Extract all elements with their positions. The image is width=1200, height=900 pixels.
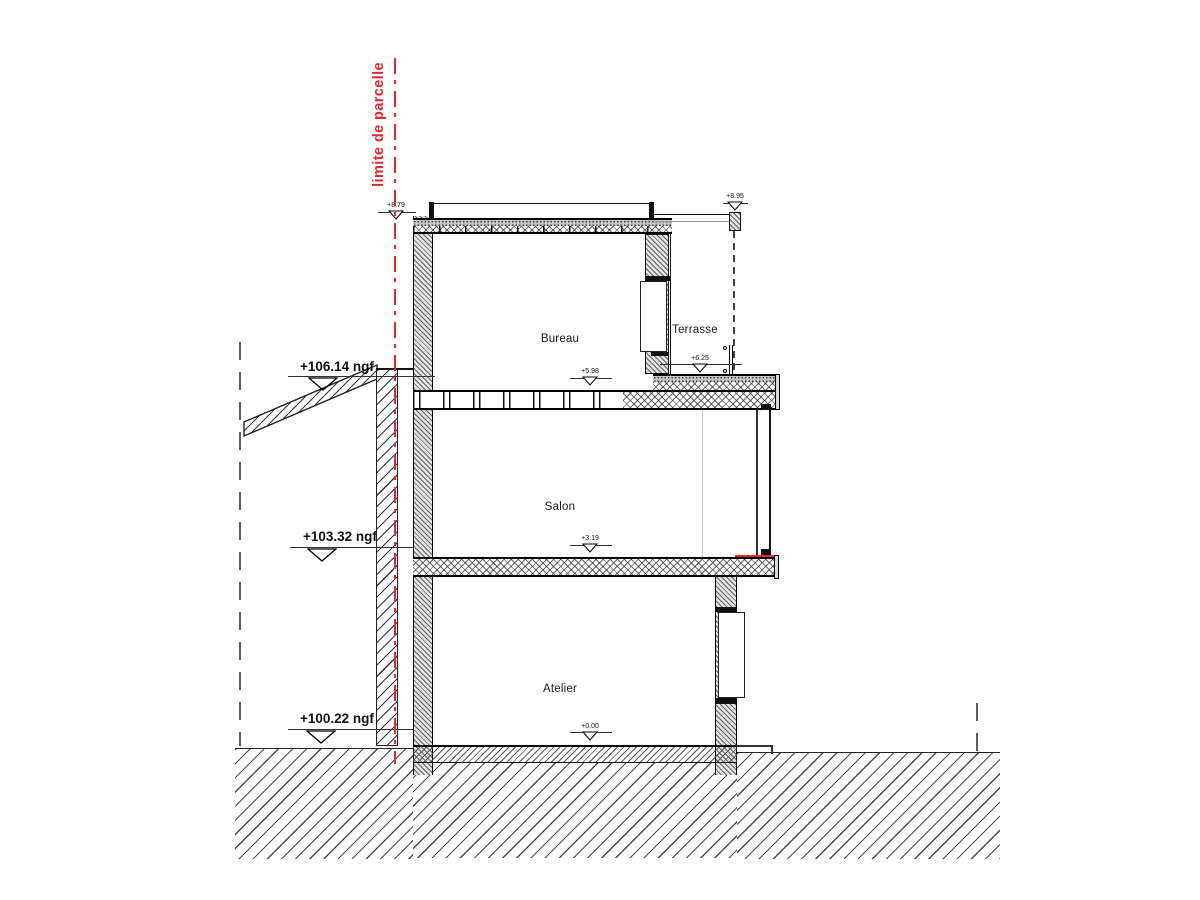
- terrasse-door-sill: [651, 352, 669, 356]
- room-label-salon: Salon: [505, 501, 615, 513]
- room-label-atelier: Atelier: [505, 683, 615, 695]
- salon-reference-line: [702, 410, 703, 557]
- section-drawing: limite de parcelle Bureau Terrasse Salon…: [0, 0, 1200, 900]
- terrasse-top-line: [653, 214, 741, 215]
- room-label-terrasse: Terrasse: [640, 324, 750, 336]
- roof-guardrail-post-left: [429, 202, 434, 219]
- salon-window-head-fitting: [761, 404, 771, 410]
- atelier-floor-slab: [413, 745, 737, 763]
- level-triangle-icon: [582, 731, 598, 741]
- level-marker-salon-floor: +3.19: [568, 535, 612, 553]
- terrasse-door: [640, 281, 667, 352]
- neighbor-roof-slope: [0, 0, 1200, 900]
- terrasse-top-line-2: [653, 221, 729, 222]
- level-triangle-icon: [582, 376, 598, 386]
- level-triangle-icon: [692, 363, 708, 373]
- bureau-floor-slab: [413, 390, 779, 410]
- level-value-salon-floor: +3.19: [568, 535, 612, 542]
- level-value-screen-top: +8.95: [713, 193, 757, 200]
- roof-insulation-layer: [413, 226, 672, 233]
- ngf-triangle-icon: [308, 377, 338, 391]
- level-value-atelier-floor: +0.00: [568, 723, 612, 730]
- wall-left: [413, 216, 433, 775]
- terrasse-door-head: [645, 276, 670, 281]
- bureau-floor-insulation: [623, 392, 779, 408]
- atelier-window-sill: [716, 698, 736, 704]
- salon-window-outer-pane: [769, 410, 771, 557]
- atelier-window: [718, 612, 745, 698]
- slab-edge-cap-upper: [775, 374, 780, 410]
- level-marker-bureau-floor: +5.98: [568, 368, 612, 386]
- ngf-label-ground: +100.22 ngf: [300, 711, 374, 726]
- terrasse-screen-dashed-line: [733, 231, 735, 374]
- roof-guardrail-line: [431, 203, 653, 204]
- wall-bureau-exterior-face: [670, 234, 671, 374]
- terrasse-screen-post: [729, 212, 741, 231]
- roof-guardrail-post-right: [649, 202, 654, 219]
- parcel-boundary-line: [394, 58, 396, 764]
- level-triangle-icon: [727, 201, 743, 211]
- bureau-floor-joists: [413, 392, 623, 408]
- level-marker-terrasse-floor: +6.25: [678, 355, 722, 373]
- parcel-boundary-label: limite de parcelle: [371, 62, 387, 187]
- salon-floor-slab: [413, 557, 779, 577]
- ngf-label-mid: +103.32 ngf: [303, 529, 377, 544]
- glass-fixing-dot-bottom: [723, 369, 727, 373]
- ngf-label-neighbor-roof: +106.14 ngf: [300, 359, 374, 374]
- slab-edge-cap-lower: [774, 555, 779, 579]
- level-value-bureau-floor: +5.98: [568, 368, 612, 375]
- glass-fixing-dot-top: [723, 346, 727, 350]
- salon-slab-red-marker-line: [735, 555, 776, 557]
- salon-window-inner-pane: [756, 410, 758, 557]
- ngf-triangle-icon: [307, 548, 337, 562]
- level-value-terrasse-floor: +6.25: [678, 355, 722, 362]
- roof-slab: [413, 218, 672, 234]
- level-triangle-icon: [582, 543, 598, 553]
- ngf-triangle-icon: [306, 730, 336, 744]
- level-marker-atelier-floor: +0.00: [568, 723, 612, 741]
- level-marker-screen-top: +8.95: [713, 193, 757, 211]
- room-label-bureau: Bureau: [505, 333, 615, 345]
